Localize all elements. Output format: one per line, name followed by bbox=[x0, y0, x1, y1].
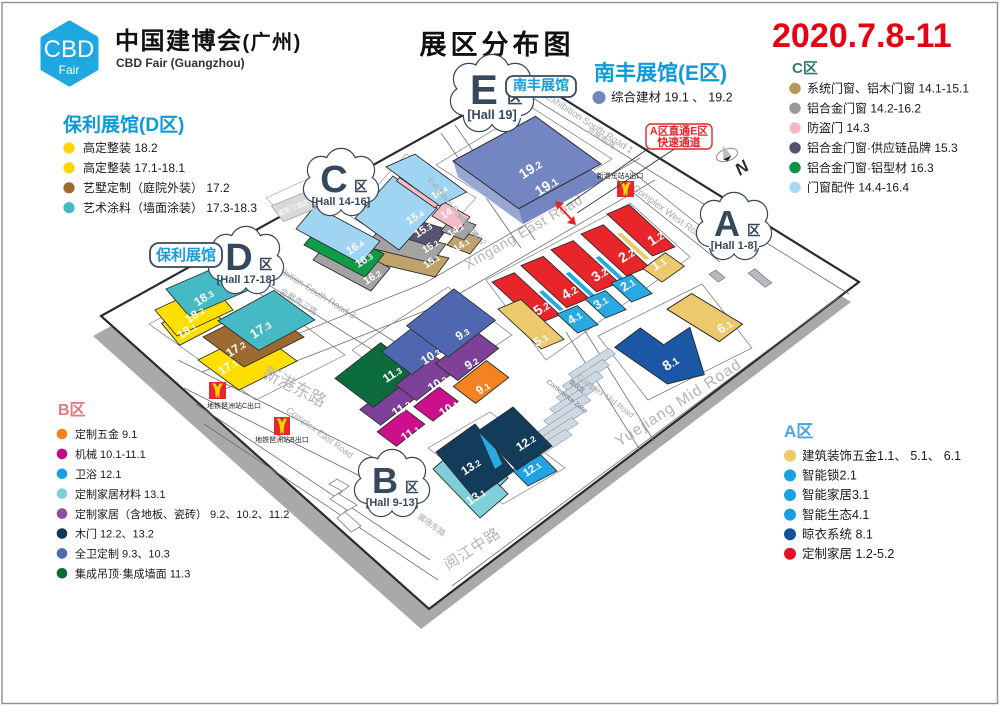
svg-text:铝合金门窗·供应链品牌 15.3: 铝合金门窗·供应链品牌 15.3 bbox=[807, 140, 958, 155]
svg-text:地铁琶洲站B出口: 地铁琶洲站B出口 bbox=[255, 435, 309, 444]
svg-text:卫浴 12.1: 卫浴 12.1 bbox=[75, 468, 121, 481]
svg-text:区: 区 bbox=[354, 179, 368, 194]
svg-text:综合建材 19.1 、 19.2: 综合建材 19.1 、 19.2 bbox=[611, 90, 733, 105]
svg-text:定制家居材料 13.1: 定制家居材料 13.1 bbox=[75, 487, 165, 501]
svg-text:C: C bbox=[320, 159, 347, 201]
svg-text:定制五金 9.1: 定制五金 9.1 bbox=[75, 427, 137, 441]
svg-text:智能生态4.1: 智能生态4.1 bbox=[802, 507, 869, 522]
svg-text:木门 12.2、13.2: 木门 12.2、13.2 bbox=[75, 527, 154, 541]
svg-text:区: 区 bbox=[747, 223, 761, 238]
svg-text:高定整装 17.1-18.1: 高定整装 17.1-18.1 bbox=[83, 160, 185, 175]
svg-text:中国建博会(广州): 中国建博会(广州) bbox=[115, 27, 302, 55]
svg-text:[Hall 14-16]: [Hall 14-16] bbox=[312, 196, 371, 208]
svg-text:N: N bbox=[731, 156, 753, 179]
svg-text:保利展馆: 保利展馆 bbox=[155, 246, 216, 264]
svg-text:CBD: CBD bbox=[44, 36, 95, 63]
svg-text:Fair: Fair bbox=[59, 63, 80, 77]
svg-text:[Hall 17-18]: [Hall 17-18] bbox=[217, 274, 276, 286]
svg-text:[Hall 19]: [Hall 19] bbox=[467, 108, 516, 122]
svg-text:[Hall 9-13]: [Hall 9-13] bbox=[366, 497, 419, 509]
svg-text:A: A bbox=[714, 203, 740, 244]
svg-text:B: B bbox=[372, 460, 398, 501]
svg-text:B区: B区 bbox=[58, 401, 86, 419]
svg-text:定制家居（含地板、瓷砖） 9.2、10.2、11.2: 定制家居（含地板、瓷砖） 9.2、10.2、11.2 bbox=[75, 507, 289, 521]
svg-text:快速通道: 快速通道 bbox=[657, 135, 700, 149]
svg-text:E: E bbox=[470, 66, 498, 113]
svg-text:机械 10.1-11.1: 机械 10.1-11.1 bbox=[75, 447, 146, 461]
svg-text:智能家居3.1: 智能家居3.1 bbox=[802, 487, 869, 502]
svg-text:CBD Fair (Guangzhou): CBD Fair (Guangzhou) bbox=[116, 56, 245, 70]
svg-text:系统门窗、铝木门窗 14.1-15.1: 系统门窗、铝木门窗 14.1-15.1 bbox=[807, 81, 969, 96]
svg-text:保利展馆(D区): 保利展馆(D区) bbox=[62, 113, 184, 136]
svg-text:集成吊顶·集成墙面 11.3: 集成吊顶·集成墙面 11.3 bbox=[75, 567, 190, 581]
svg-text:晾衣系统 8.1: 晾衣系统 8.1 bbox=[802, 526, 873, 541]
svg-text:定制家居 1.2-5.2: 定制家居 1.2-5.2 bbox=[802, 546, 894, 561]
svg-text:[Hall 1-8]: [Hall 1-8] bbox=[711, 240, 758, 252]
svg-text:高定整装 18.2: 高定整装 18.2 bbox=[83, 140, 158, 155]
svg-text:地铁琶洲站C出口: 地铁琶洲站C出口 bbox=[207, 401, 261, 410]
svg-text:铝合金门窗 14.2-16.2: 铝合金门窗 14.2-16.2 bbox=[807, 100, 921, 115]
svg-text:新港东站A出口: 新港东站A出口 bbox=[597, 171, 644, 180]
svg-text:全卫定制 9.3、10.3: 全卫定制 9.3、10.3 bbox=[75, 547, 170, 561]
svg-text:D: D bbox=[225, 237, 252, 279]
svg-text:C区: C区 bbox=[792, 60, 818, 77]
svg-text:艺墅定制（庭院外装） 17.2: 艺墅定制（庭院外装） 17.2 bbox=[83, 180, 230, 195]
svg-text:南丰展馆: 南丰展馆 bbox=[513, 77, 569, 93]
svg-text:区: 区 bbox=[405, 480, 419, 495]
svg-text:2020.7.8-11: 2020.7.8-11 bbox=[772, 17, 952, 55]
svg-text:智能锁2.1: 智能锁2.1 bbox=[802, 468, 857, 483]
svg-text:铝合金门窗·铝型材 16.3: 铝合金门窗·铝型材 16.3 bbox=[807, 160, 934, 175]
svg-text:区: 区 bbox=[259, 257, 273, 272]
svg-text:南丰展馆(E区): 南丰展馆(E区) bbox=[594, 61, 727, 85]
svg-text:A区直通E区: A区直通E区 bbox=[650, 124, 708, 138]
svg-text:艺术涂料（墙面涂装） 17.3-18.3: 艺术涂料（墙面涂装） 17.3-18.3 bbox=[83, 200, 257, 215]
svg-text:门窗配件 14.4-16.4: 门窗配件 14.4-16.4 bbox=[807, 180, 909, 195]
svg-text:防盗门 14.3: 防盗门 14.3 bbox=[807, 120, 870, 135]
svg-text:建筑装饰五金1.1、 5.1、 6.1: 建筑装饰五金1.1、 5.1、 6.1 bbox=[802, 448, 961, 463]
svg-text:A区: A区 bbox=[784, 422, 813, 441]
